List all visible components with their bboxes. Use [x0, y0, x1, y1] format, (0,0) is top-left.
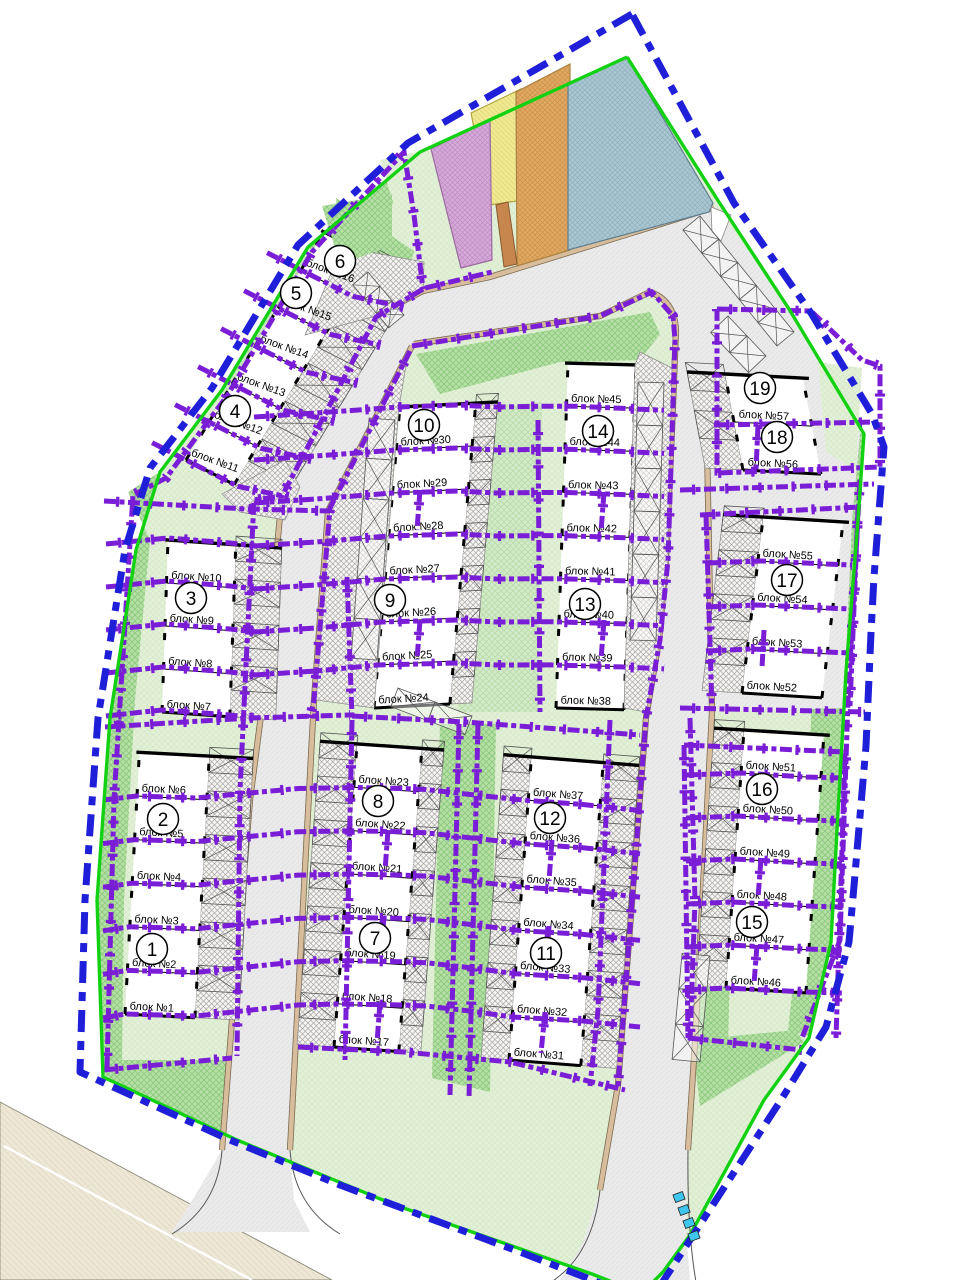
svg-text:3: 3 [186, 589, 197, 610]
svg-text:11: 11 [536, 944, 556, 965]
svg-text:блок №41: блок №41 [565, 565, 616, 578]
svg-text:блок №45: блок №45 [571, 393, 622, 406]
svg-text:блок №38: блок №38 [560, 695, 611, 708]
svg-text:10: 10 [413, 416, 434, 437]
svg-text:блок №42: блок №42 [566, 522, 617, 535]
svg-text:9: 9 [385, 591, 396, 612]
svg-text:7: 7 [370, 929, 381, 950]
svg-text:13: 13 [574, 595, 595, 616]
svg-text:18: 18 [766, 428, 787, 449]
svg-text:15: 15 [741, 913, 762, 934]
svg-text:блок №39: блок №39 [562, 651, 613, 664]
svg-text:19: 19 [749, 379, 770, 400]
svg-text:8: 8 [373, 792, 384, 813]
svg-text:5: 5 [291, 284, 302, 305]
svg-text:17: 17 [776, 571, 797, 592]
svg-text:1: 1 [147, 940, 158, 961]
svg-text:12: 12 [539, 809, 560, 830]
svg-text:16: 16 [751, 780, 772, 801]
svg-text:6: 6 [335, 252, 346, 273]
svg-text:2: 2 [158, 810, 169, 831]
svg-text:14: 14 [587, 422, 609, 443]
svg-text:4: 4 [230, 402, 241, 423]
